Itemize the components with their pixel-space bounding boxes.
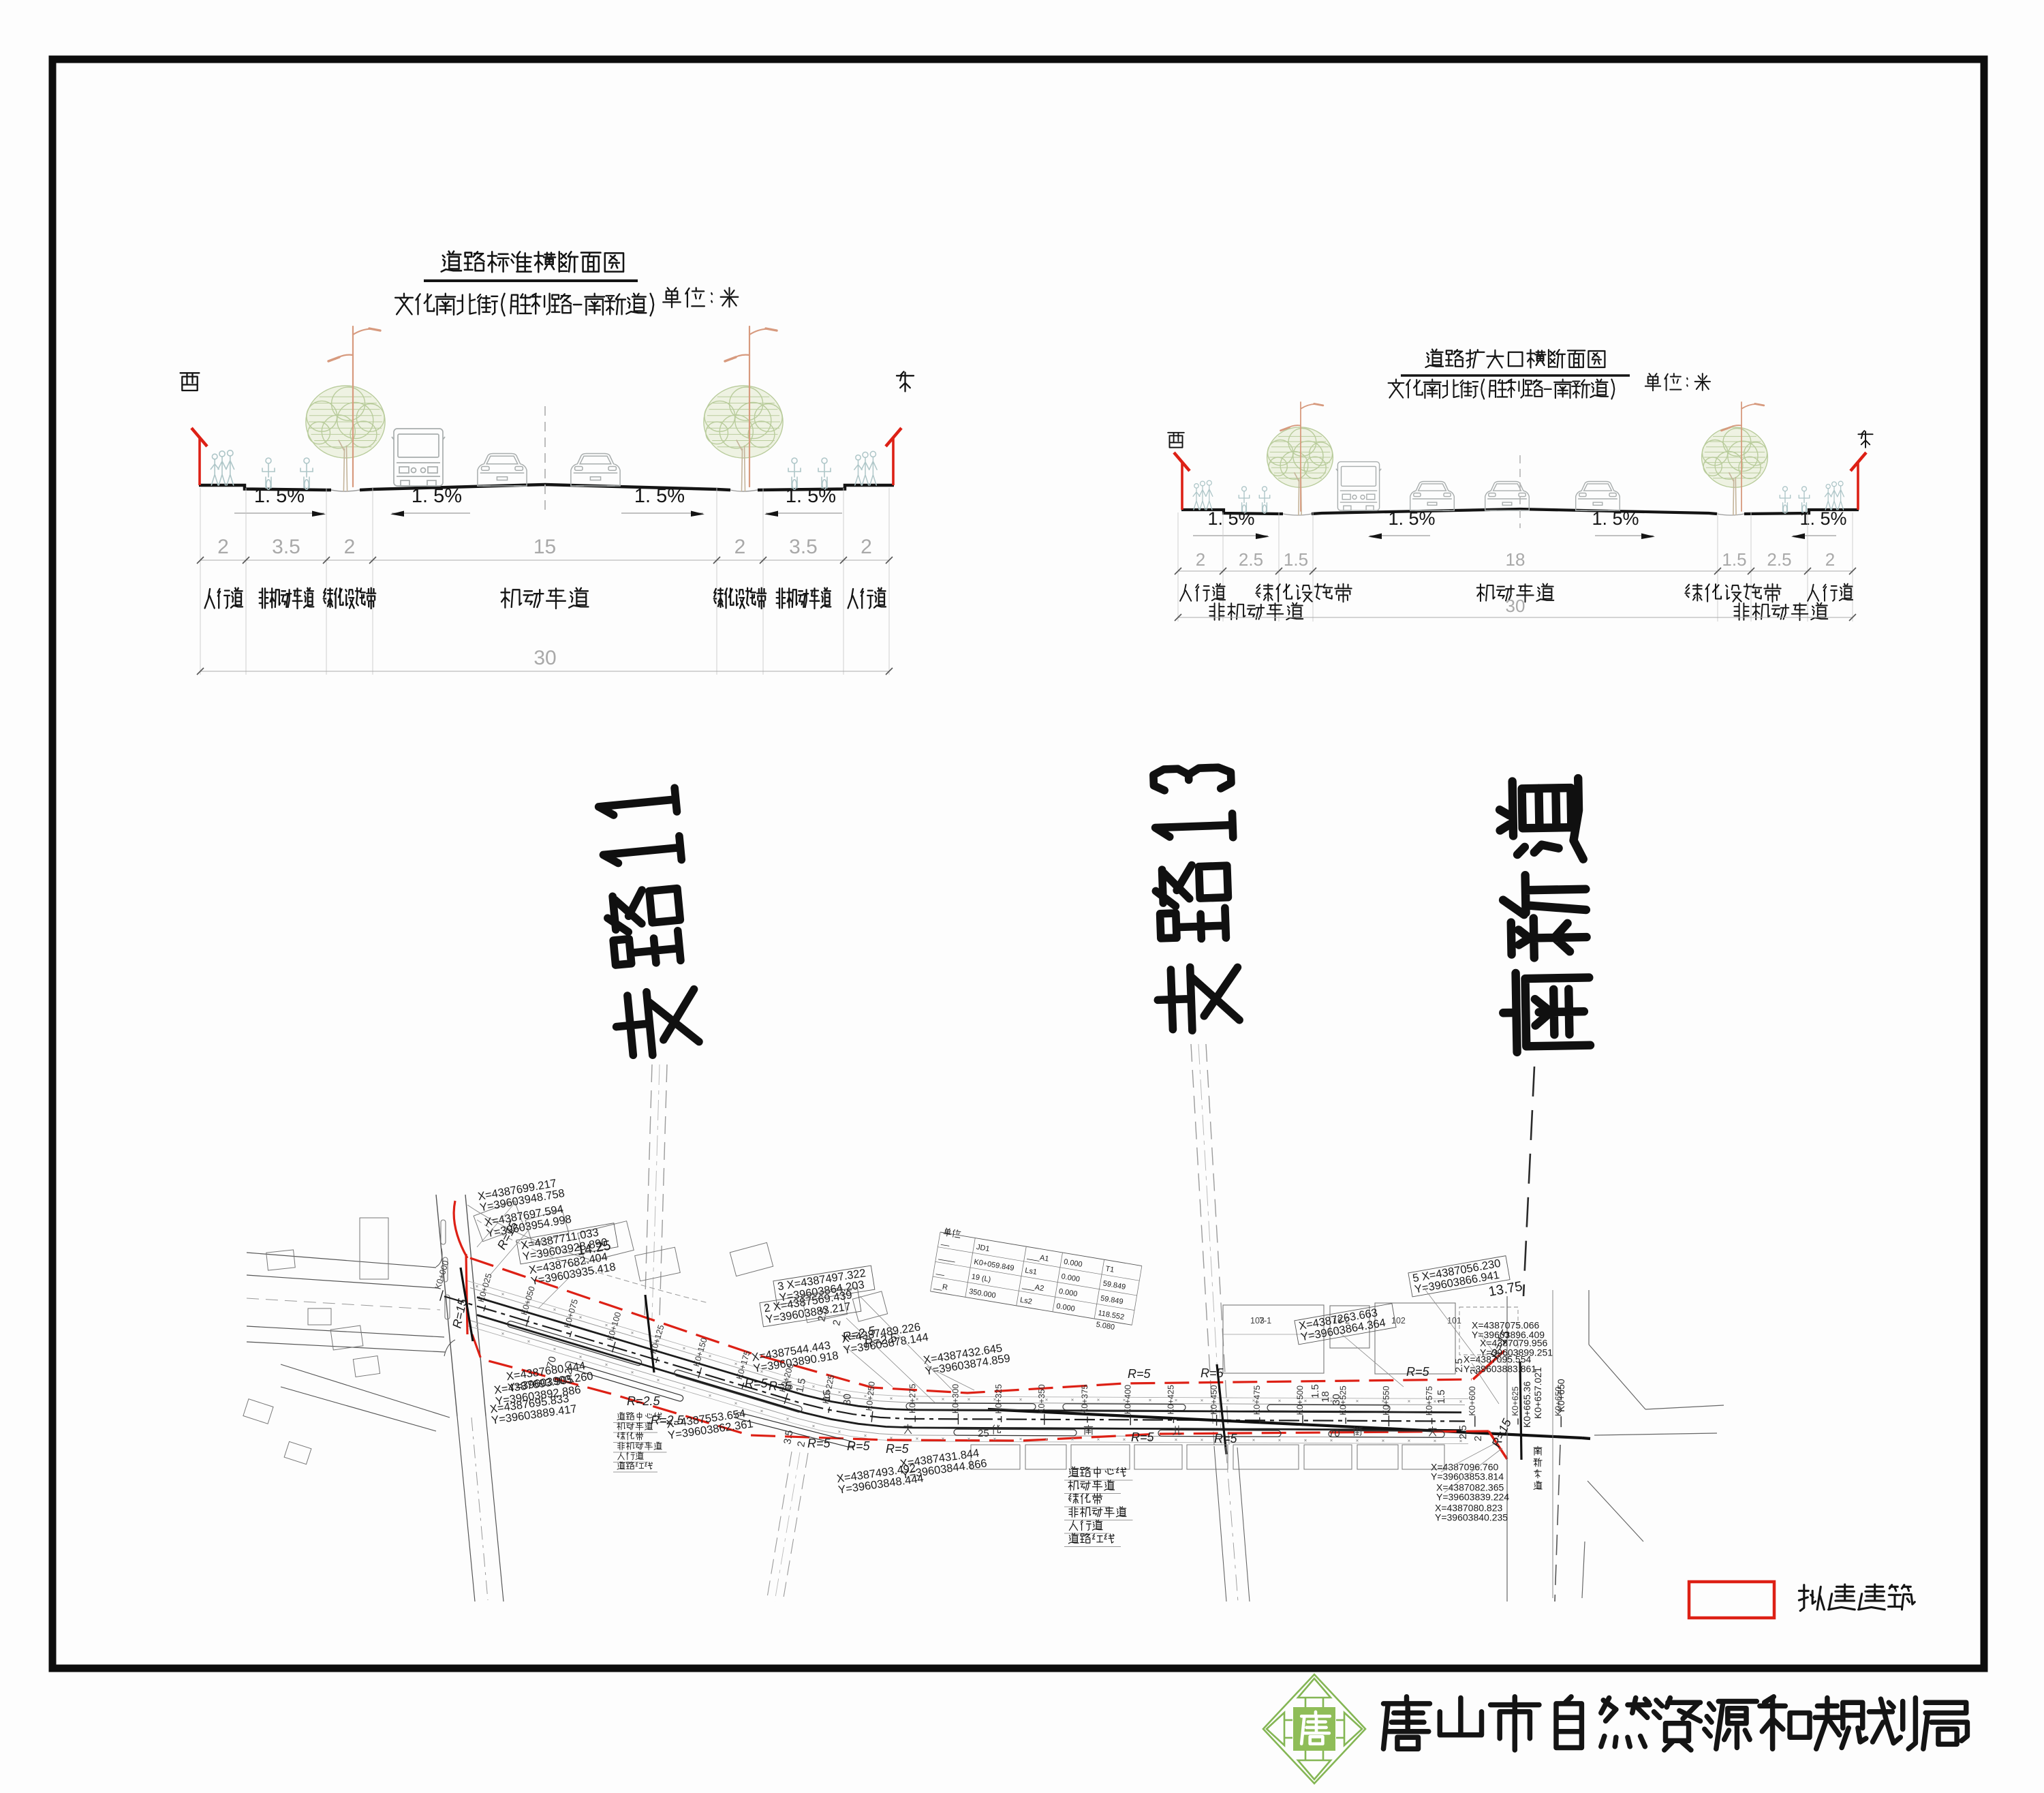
svg-text:2: 2 [861,536,872,558]
svg-text:3.5: 3.5 [789,536,818,558]
svg-text:R=2.5: R=2.5 [627,1394,661,1408]
svg-text:R=5: R=5 [745,1377,769,1390]
svg-text:25: 25 [978,1428,989,1439]
svg-text:1. 5%: 1. 5% [1799,508,1846,529]
svg-text:2: 2 [344,536,356,558]
svg-text:103: 103 [1250,1316,1265,1325]
svg-text:R=5: R=5 [1406,1365,1430,1379]
svg-text:R=2.5: R=2.5 [651,1413,685,1427]
svg-text:R=5: R=5 [1214,1432,1238,1445]
svg-text:2.5: 2.5 [1239,549,1263,570]
svg-text:1. 5%: 1. 5% [412,485,462,507]
svg-text:101: 101 [1447,1316,1461,1325]
svg-text:1. 5%: 1. 5% [786,485,836,507]
svg-text:Y=39603853.814: Y=39603853.814 [1431,1471,1504,1482]
svg-text:1.5: 1.5 [1310,1384,1321,1398]
svg-text:2.5: 2.5 [1767,549,1791,570]
svg-text:2.5: 2.5 [1457,1425,1469,1439]
svg-text:1.5: 1.5 [1284,549,1308,570]
svg-text:2: 2 [217,536,229,558]
svg-text:K0+650: K0+650 [1555,1379,1566,1412]
svg-text:2: 2 [1472,1436,1484,1441]
svg-text:2: 2 [734,536,746,558]
svg-text:R=5: R=5 [1201,1366,1224,1380]
svg-text:1.5: 1.5 [1436,1390,1447,1404]
svg-text:K0+350: K0+350 [1037,1384,1047,1414]
svg-text:15: 15 [821,1390,833,1401]
svg-text:R=5: R=5 [886,1442,910,1456]
svg-text:R=5: R=5 [807,1437,831,1450]
svg-text:K0+600: K0+600 [1468,1386,1477,1416]
svg-text:2: 2 [1196,549,1205,570]
svg-text:Y=39603840.235: Y=39603840.235 [1435,1512,1508,1523]
svg-text:1.5: 1.5 [1722,549,1746,570]
svg-text:1. 5%: 1. 5% [634,485,685,507]
svg-text:18: 18 [1506,549,1526,570]
svg-text:T1: T1 [1104,1265,1115,1274]
svg-text:30: 30 [1506,596,1526,616]
svg-text:3.5: 3.5 [272,536,300,558]
svg-text:1. 5%: 1. 5% [1592,508,1639,529]
svg-text:R=5: R=5 [1128,1367,1151,1381]
svg-text:3.5: 3.5 [781,1429,795,1445]
svg-text:R=5: R=5 [1131,1430,1155,1444]
svg-text:30: 30 [1331,1394,1342,1405]
svg-text:1. 5%: 1. 5% [1207,508,1254,529]
svg-text:K0+575: K0+575 [1425,1386,1434,1416]
svg-text:102: 102 [1391,1316,1406,1325]
svg-text:K0+657.021: K0+657.021 [1532,1367,1543,1419]
svg-text:2: 2 [1468,1369,1480,1375]
svg-text:70: 70 [1329,1428,1340,1439]
svg-text:30: 30 [841,1394,854,1405]
svg-text:1. 5%: 1. 5% [1388,508,1435,529]
svg-text:1. 5%: 1. 5% [254,485,305,507]
svg-text:Y=39603839.224: Y=39603839.224 [1436,1492,1509,1503]
svg-text:K0+665.36: K0+665.36 [1521,1381,1532,1428]
svg-text:R=5: R=5 [847,1439,871,1453]
svg-text:30: 30 [533,647,556,669]
svg-text:K0+450: K0+450 [1209,1385,1219,1415]
svg-text:2.5: 2.5 [1453,1358,1465,1373]
svg-text:18: 18 [1320,1391,1331,1403]
svg-text:2: 2 [1825,549,1835,570]
svg-text:15: 15 [533,536,556,558]
svg-text:K0+625: K0+625 [1511,1386,1520,1416]
